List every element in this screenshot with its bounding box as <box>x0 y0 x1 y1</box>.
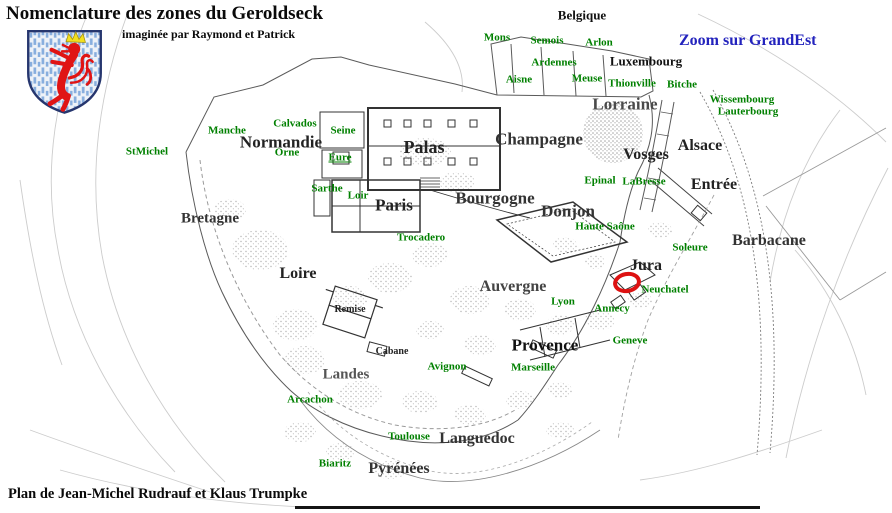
geroldseck-map-page: Nomenclature des zones du Geroldseck ima… <box>0 0 892 513</box>
zone-label-pyrenees: Pyrénées <box>368 461 429 477</box>
place-label-annecy: Annecy <box>594 304 629 315</box>
place-label-lyon: Lyon <box>551 297 575 308</box>
place-label-sarthe: Sarthe <box>311 184 342 195</box>
place-label-labresse: LaBresse <box>622 177 665 188</box>
zone-label-bourgogne: Bourgogne <box>455 190 534 207</box>
place-label-haute-saone: Haute Saône <box>575 222 635 233</box>
place-label-ardennes: Ardennes <box>531 58 576 69</box>
zone-label-lorraine: Lorraine <box>592 96 657 113</box>
place-label-wissembourg: Wissembourg <box>710 95 775 106</box>
zone-label-cabane: Cabane <box>376 347 409 357</box>
place-label-thionville: Thionville <box>608 79 656 90</box>
zone-label-languedoc: Languedoc <box>439 431 515 447</box>
zone-label-barbacane: Barbacane <box>732 233 806 249</box>
zone-label-jura: Jura <box>630 258 662 274</box>
place-label-epinal: Epinal <box>584 176 615 187</box>
luxembourg-coat-of-arms <box>21 28 108 115</box>
zone-label-belgique: Belgique <box>558 9 606 22</box>
zone-label-palas: Palas <box>403 138 444 156</box>
zone-label-vosges: Vosges <box>623 147 669 163</box>
zone-label-entree: Entrée <box>691 177 737 193</box>
bottom-edge-line <box>295 506 760 509</box>
place-label-toulouse: Toulouse <box>388 432 430 443</box>
place-label-calvados: Calvados <box>273 119 316 130</box>
zone-label-landes: Landes <box>323 368 370 383</box>
zoom-grandest-link[interactable]: Zoom sur GrandEst <box>679 32 817 50</box>
place-label-geneve: Geneve <box>613 336 648 347</box>
zone-label-paris: Paris <box>375 197 413 214</box>
zone-label-alsace: Alsace <box>678 138 722 154</box>
place-label-mons: Mons <box>484 33 510 44</box>
zone-label-donjon: Donjon <box>541 203 595 220</box>
zone-label-auvergne: Auvergne <box>480 279 547 295</box>
zone-label-champagne: Champagne <box>495 131 583 148</box>
page-subtitle: imaginée par Raymond et Patrick <box>122 27 295 42</box>
place-label-aisne: Aisne <box>506 75 532 86</box>
zone-label-luxembourg: Luxembourg <box>610 55 682 68</box>
zone-label-remise: Remise <box>334 305 365 315</box>
zone-label-loire: Loire <box>279 266 316 282</box>
place-label-avignon: Avignon <box>428 362 467 373</box>
place-label-meuse: Meuse <box>572 74 603 85</box>
place-label-marseille: Marseille <box>511 363 555 374</box>
place-label-bitche: Bitche <box>667 80 697 91</box>
place-label-stmichel: StMichel <box>126 147 168 158</box>
place-label-arcachon: Arcachon <box>287 395 333 406</box>
zone-label-provence: Provence <box>512 337 579 354</box>
place-label-trocadero: Trocadero <box>397 233 445 244</box>
plan-credit: Plan de Jean-Michel Rudrauf et Klaus Tru… <box>8 486 307 503</box>
place-label-semois: Semois <box>531 36 564 47</box>
place-label-lauterbourg: Lauterbourg <box>718 107 779 118</box>
place-label-seine: Seine <box>330 126 355 137</box>
place-label-arlon: Arlon <box>585 38 613 49</box>
place-label-manche: Manche <box>208 126 246 137</box>
page-title: Nomenclature des zones du Geroldseck <box>6 3 323 25</box>
place-label-orne: Orne <box>275 148 299 159</box>
place-label-soleure: Soleure <box>672 243 707 254</box>
place-label-biaritz: Biaritz <box>319 459 351 470</box>
zone-label-bretagne: Bretagne <box>181 212 239 227</box>
place-label-loir: Loir <box>348 191 369 202</box>
place-label-neuchatel: Neuchatel <box>641 285 688 296</box>
place-label-eure: Eure <box>328 153 351 164</box>
